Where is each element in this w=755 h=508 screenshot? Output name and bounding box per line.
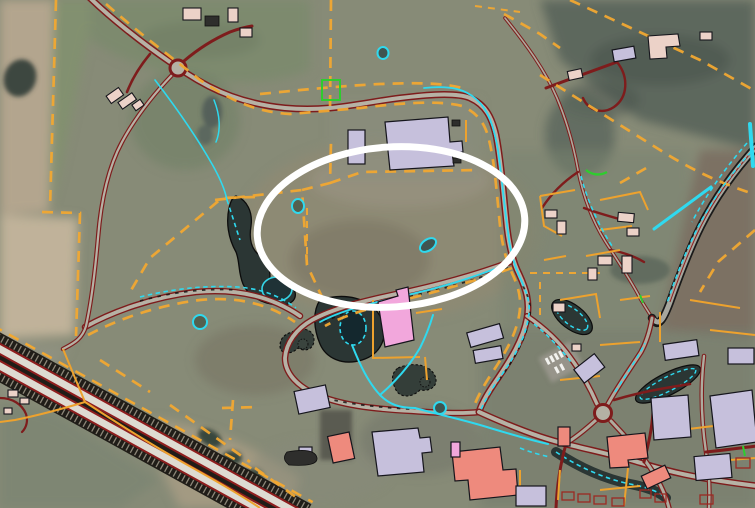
town-lavender-ne: [710, 390, 755, 448]
town-pond-ring: [434, 402, 446, 414]
top-pond-ring: [378, 47, 389, 59]
roundabout-town: [595, 405, 612, 422]
ellipse-west-pond-ring: [292, 199, 304, 213]
south-pond-ring: [193, 315, 207, 329]
aerial-map[interactable]: [0, 0, 755, 508]
map-viewport[interactable]: [0, 0, 755, 508]
